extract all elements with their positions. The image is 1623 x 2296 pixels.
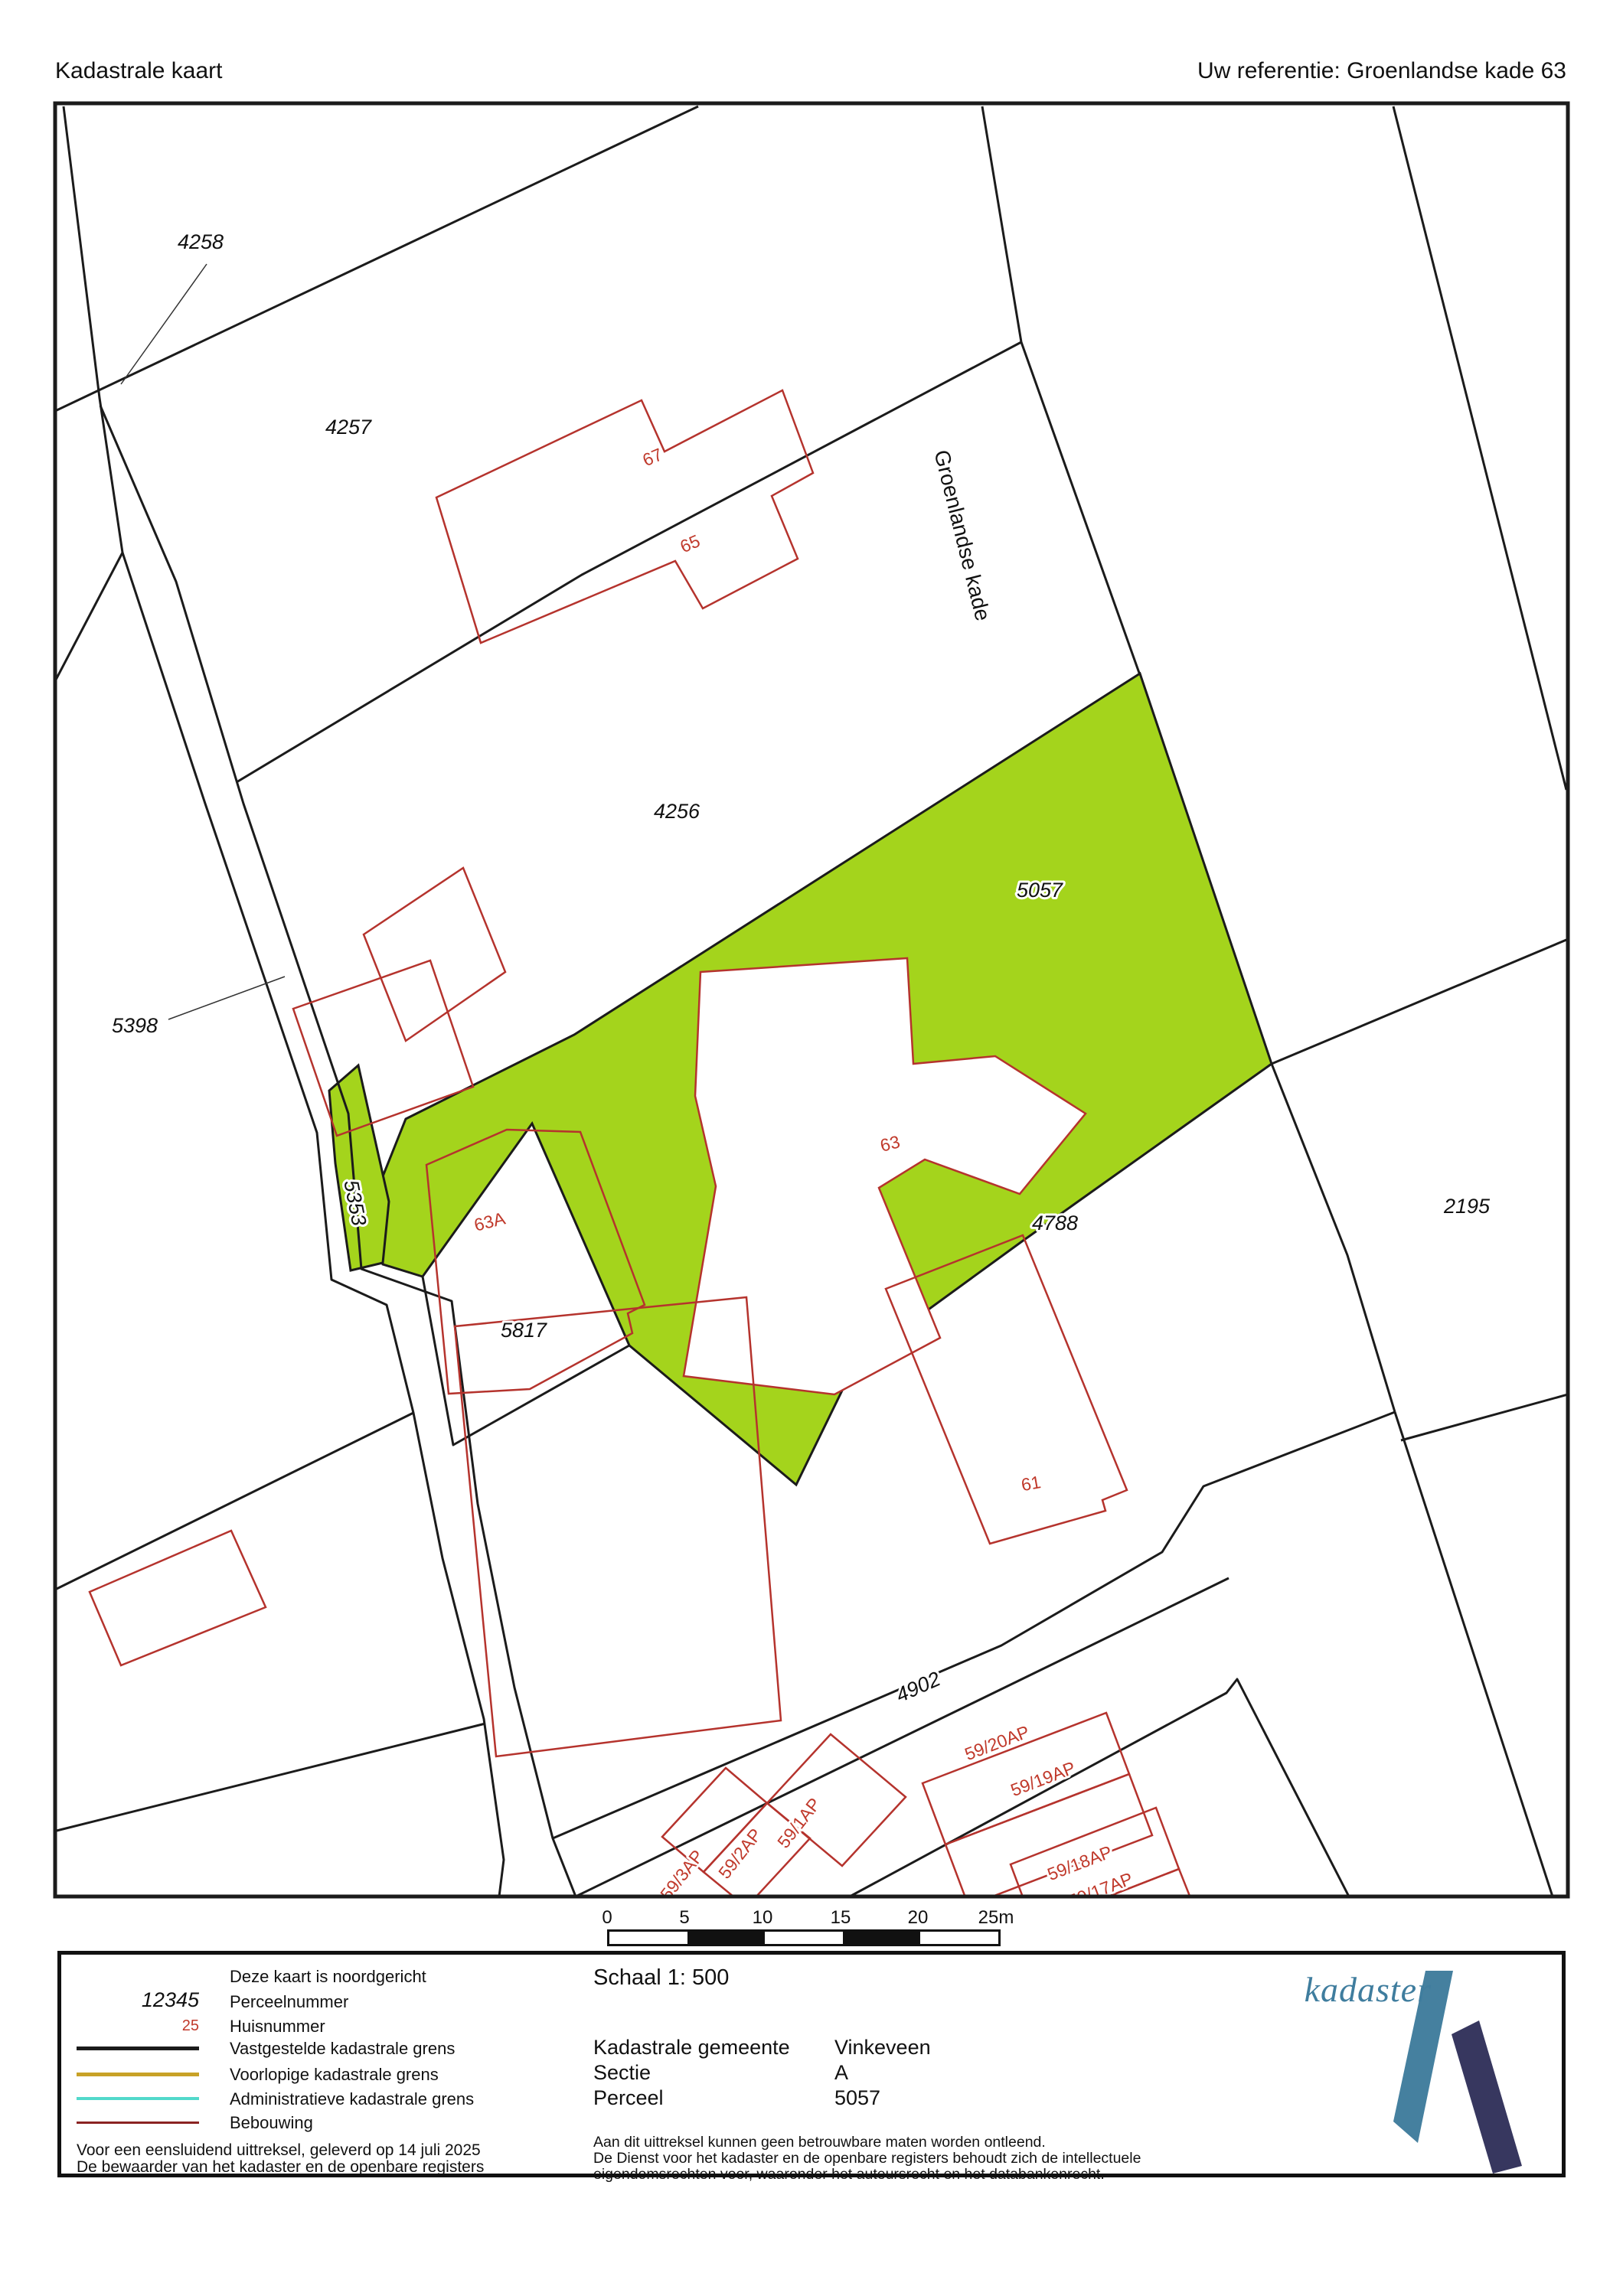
legend-sample-perceelnummer: 12345	[69, 1988, 199, 2012]
parcel-number-label: 4256	[654, 800, 700, 823]
parcel-number-label: 5057	[1017, 879, 1063, 902]
boundary-line	[55, 553, 122, 681]
parcel-number-label: 4257	[325, 416, 372, 439]
scale-number: 20	[908, 1907, 929, 1929]
perceel-value: 5057	[834, 2086, 880, 2110]
sectie-label: Sectie	[593, 2061, 651, 2085]
boundary-line	[1021, 342, 1140, 675]
parcel-number-label: 4258	[178, 230, 224, 253]
house-number-label: 59/20AP	[962, 1721, 1032, 1764]
scale-number: 5	[679, 1907, 689, 1929]
legend-line-administratief	[77, 2097, 199, 2100]
street-name-label: Groenlandse kade	[929, 448, 994, 624]
legend-sample-huisnummer: 25	[69, 2017, 199, 2035]
disclaimer-line2: De Dienst voor het kadaster en de openba…	[593, 2150, 1141, 2167]
house-number-label: 63A	[472, 1208, 508, 1234]
boundary-line	[1272, 1064, 1395, 1412]
legend-line-vastgesteld	[77, 2047, 199, 2050]
scale-number: 15	[831, 1907, 851, 1929]
parcel-number-label: 5398	[112, 1014, 158, 1037]
scale-text: Schaal 1: 500	[593, 1965, 729, 1991]
greenhouse-southwest	[90, 1531, 266, 1665]
house-number-label: 59/19AP	[1007, 1757, 1078, 1800]
scale-number: 0	[602, 1907, 612, 1929]
boundary-line	[423, 1277, 629, 1445]
boundary-line	[55, 106, 698, 411]
scale-segment	[843, 1932, 921, 1944]
boundary-line	[237, 342, 1021, 782]
legend-label-bebouwing: Bebouwing	[230, 2113, 313, 2133]
building-67-65	[436, 390, 813, 643]
kadastrale-kaart-page: Kadastrale kaart Uw referentie: Groenlan…	[0, 0, 1623, 2296]
parcel-number-label: 4788	[1032, 1212, 1078, 1234]
kadaster-logo-text: kadaster	[1256, 1969, 1432, 2010]
legend-label-perceelnummer: Perceelnummer	[230, 1992, 348, 2012]
scale-bar-segments	[607, 1929, 1001, 1946]
footer-line1: Voor een eensluidend uittreksel, gelever…	[77, 2141, 481, 2160]
scale-segment	[920, 1932, 998, 1944]
leader-line	[121, 264, 207, 384]
scale-bar: 0510152025m	[607, 1907, 1005, 1953]
scale-number: 10	[753, 1907, 773, 1929]
perceel-label: Perceel	[593, 2086, 664, 2110]
scale-number: 25m	[978, 1907, 1014, 1929]
boundary-line	[576, 1578, 1229, 1896]
footer-line2: De bewaarder van het kadaster en de open…	[77, 2158, 484, 2177]
house-number-label: 59/1AP	[773, 1794, 825, 1851]
boundary-line	[57, 1413, 413, 1589]
kadastrale-gemeente-label: Kadastrale gemeente	[593, 2036, 790, 2060]
boundary-line	[1272, 940, 1566, 1064]
boundary-line	[1395, 1412, 1553, 1896]
boundary-line	[57, 1724, 485, 1831]
parcel-number-label: 5817	[501, 1319, 547, 1342]
legend-label-administratief: Administratieve kadastrale grens	[230, 2089, 474, 2109]
shed-north	[364, 868, 505, 1041]
leader-lines	[121, 264, 285, 1019]
disclaimer-line3: eigendomsrechten voor, waaronder het aut…	[593, 2166, 1105, 2183]
legend-label-huisnummer: Huisnummer	[230, 2017, 325, 2037]
boundary-line	[982, 106, 1021, 342]
north-note: Deze kaart is noordgericht	[230, 1967, 426, 1987]
house-number-label: 67	[639, 444, 665, 470]
legend-label-vastgesteld: Vastgestelde kadastrale grens	[230, 2039, 455, 2059]
legend-label-voorlopig: Voorlopige kadastrale grens	[230, 2065, 439, 2085]
parcel-number-label: 2195	[1443, 1195, 1491, 1218]
house-number-label: 61	[1020, 1472, 1043, 1495]
house-number-label: 65	[677, 530, 703, 556]
leader-line	[168, 977, 285, 1019]
sectie-value: A	[834, 2061, 848, 2085]
scale-segment	[687, 1932, 766, 1944]
disclaimer-line1: Aan dit uittreksel kunnen geen betrouwba…	[593, 2134, 1046, 2151]
boundary-line	[1401, 1394, 1568, 1440]
kadaster-logo: kadaster	[1256, 1955, 1562, 2174]
scale-segment	[609, 1932, 687, 1944]
boundary-line	[553, 1412, 1395, 1838]
legend-line-bebouwing	[77, 2122, 199, 2124]
scale-segment	[765, 1932, 843, 1944]
parcel-number-label: 4902	[893, 1667, 944, 1707]
boundary-line	[1393, 106, 1566, 790]
kadastrale-gemeente-value: Vinkeveen	[834, 2036, 931, 2060]
legend-line-voorlopig	[77, 2073, 199, 2076]
